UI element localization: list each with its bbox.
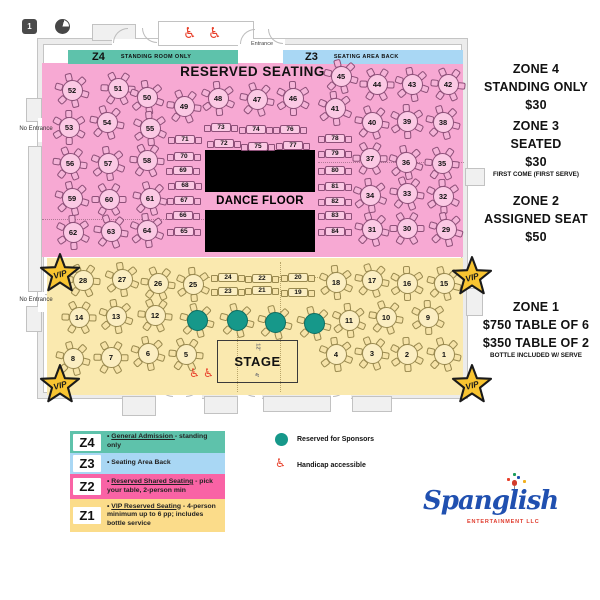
- table-14: 14: [61, 299, 97, 335]
- entrance-label: Entrance: [238, 41, 286, 47]
- band-z3-code: Z3: [305, 51, 318, 63]
- stage-label: STAGE: [234, 354, 280, 369]
- table-49: 49: [166, 88, 202, 124]
- table-17: 17: [354, 262, 390, 298]
- legend-code-z1: Z1: [73, 507, 101, 524]
- table-29: 29: [428, 211, 464, 247]
- wall-closet: [263, 396, 331, 412]
- company-logo: Spanglish ENTERTAINMENT LLC: [415, 478, 575, 538]
- table-number: 13: [106, 306, 127, 327]
- table-79: 79: [325, 149, 345, 158]
- pricing-zone4: ZONE 4STANDING ONLY$30: [472, 60, 600, 114]
- chair-icon: [156, 157, 164, 165]
- handicap-legend-label: Handicap accessible: [297, 462, 366, 469]
- legend-code-z3: Z3: [73, 455, 101, 472]
- table-57: 57: [90, 145, 126, 181]
- table-83: 83: [325, 211, 345, 220]
- table-number: 38: [433, 112, 454, 133]
- table-38: 38: [425, 104, 461, 140]
- band-z4-code: Z4: [92, 51, 105, 63]
- table-number: 52: [62, 80, 83, 101]
- table-number: 60: [99, 189, 120, 210]
- pricing-zone-title: ZONE 4: [472, 60, 600, 78]
- table-71: 71: [175, 135, 195, 144]
- table-31: 31: [354, 211, 390, 247]
- pricing-line: $350 TABLE OF 2: [472, 334, 600, 352]
- legend-detail: Seating Area Back: [111, 459, 170, 466]
- table-81: 81: [325, 182, 345, 191]
- pricing-line: $50: [472, 228, 600, 246]
- table-58: 58: [129, 142, 165, 178]
- vip-star: VIP: [39, 253, 81, 293]
- legend-description: General Admission - standing only: [107, 433, 222, 450]
- table-13: 13: [98, 298, 134, 334]
- dance-floor: DANCE FLOOR: [205, 150, 315, 252]
- table-26: 26: [140, 265, 176, 301]
- table-number: 37: [360, 148, 381, 169]
- chair-icon: [120, 354, 128, 361]
- handicap-icon: ♿: [203, 367, 214, 379]
- chair-icon: [290, 107, 297, 115]
- table-number: 50: [137, 87, 158, 108]
- table-56: 56: [52, 145, 88, 181]
- table-number: 44: [367, 74, 388, 95]
- table-number: 62: [63, 222, 84, 243]
- table-84: 84: [325, 227, 345, 236]
- table-73: 73: [211, 123, 231, 132]
- table-63: 63: [93, 213, 129, 249]
- pricing-zone-title: ZONE 1: [472, 298, 600, 316]
- table-21: 21: [252, 286, 272, 295]
- table-61: 61: [132, 180, 168, 216]
- dance-floor-label: DANCE FLOOR: [205, 192, 315, 210]
- table-number: 26: [148, 273, 169, 294]
- table-number: 51: [108, 78, 129, 99]
- table-47: 47: [239, 81, 275, 117]
- sponsor-table: [179, 302, 215, 338]
- table-number: 1: [434, 344, 455, 365]
- pricing-line: $30: [472, 153, 600, 171]
- stage-depth-label: 4': [253, 373, 259, 377]
- table-80: 80: [325, 166, 345, 175]
- legend-row-z1: Z1VIP Reserved Seating - 4-person minimu…: [70, 499, 225, 532]
- pricing-line: $30: [472, 96, 600, 114]
- table-number: 7: [101, 347, 122, 368]
- sponsor-dot-icon: [275, 433, 288, 446]
- chair-icon: [92, 277, 100, 285]
- table-39: 39: [389, 103, 425, 139]
- table-number: 27: [112, 269, 133, 290]
- pricing-line: STANDING ONLY: [472, 78, 600, 96]
- table-6: 6: [130, 335, 166, 371]
- sponsor-table: [296, 305, 332, 341]
- vip-star: VIP: [451, 364, 493, 404]
- table-42: 42: [430, 66, 466, 102]
- legend-row-z4: Z4General Admission - standing only: [70, 431, 225, 453]
- table-78: 78: [325, 134, 345, 143]
- table-32: 32: [425, 178, 461, 214]
- table-number: 63: [101, 221, 122, 242]
- band-zone3-seating-back: Z3 SEATING AREA BACK: [283, 50, 463, 64]
- legend-code-z4: Z4: [73, 434, 101, 451]
- table-64: 64: [129, 212, 165, 248]
- event-floorplan-flyer: 1 Z4 STANDING ROOM ONLY Z3 SEATING AREA …: [0, 0, 600, 600]
- chair-icon: [88, 314, 96, 321]
- chair-icon: [379, 155, 387, 162]
- handicap-icon: ♿: [208, 26, 221, 41]
- page-number-badge[interactable]: 1: [22, 19, 37, 34]
- table-69: 69: [173, 166, 193, 175]
- table-number: 54: [97, 112, 118, 133]
- table-number: 42: [438, 74, 459, 95]
- table-20: 20: [288, 273, 308, 282]
- chair-icon: [119, 196, 127, 203]
- chair-icon: [66, 136, 73, 144]
- table-68: 68: [175, 181, 195, 190]
- table-number: 16: [397, 273, 418, 294]
- pricing-line: ASSIGNED SEAT: [472, 210, 600, 228]
- table-12: 12: [137, 297, 173, 333]
- table-number: 31: [362, 219, 383, 240]
- logo-name: Spanglish: [423, 486, 558, 516]
- table-number: 2: [397, 344, 418, 365]
- table-16: 16: [389, 265, 425, 301]
- table-22: 22: [252, 274, 272, 283]
- table-44: 44: [359, 66, 395, 102]
- table-number: 57: [98, 153, 119, 174]
- handicap-icon: ♿: [275, 457, 286, 469]
- table-number: 47: [247, 89, 268, 110]
- table-number: 29: [436, 219, 457, 240]
- legend-term: General Admission: [111, 433, 175, 440]
- table-number: 11: [339, 310, 360, 331]
- table-75: 75: [248, 142, 268, 151]
- table-60: 60: [91, 181, 127, 217]
- pricing-note: FIRST COME (FIRST SERVE): [472, 171, 600, 179]
- legend-term: VIP Reserved Seating: [111, 503, 181, 510]
- table-number: 40: [362, 112, 383, 133]
- stage-width-label: 12': [255, 343, 261, 350]
- table-9: 9: [410, 299, 446, 335]
- table-number: 59: [62, 188, 83, 209]
- table-4: 4: [318, 336, 354, 372]
- table-number: 34: [360, 185, 381, 206]
- pricing-line: SEATED: [472, 135, 600, 153]
- confetti-icon: [513, 473, 516, 476]
- table-number: 53: [59, 117, 80, 138]
- table-27: 27: [104, 261, 140, 297]
- table-number: 33: [397, 183, 418, 204]
- table-number: 36: [396, 152, 417, 173]
- table-number: 48: [208, 88, 229, 109]
- table-number: 30: [397, 218, 418, 239]
- band-z4-label: STANDING ROOM ONLY: [121, 54, 191, 60]
- table-30: 30: [389, 210, 425, 246]
- confetti-icon: [507, 478, 510, 481]
- table-number: 9: [418, 307, 439, 328]
- table-35: 35: [424, 145, 460, 181]
- table-77: 77: [283, 141, 303, 150]
- pricing-zone-title: ZONE 3: [472, 117, 600, 135]
- sponsor-legend-label: Reserved for Sponsors: [297, 436, 374, 443]
- legend-row-z2: Z2Reserved Shared Seating - pick your ta…: [70, 474, 225, 499]
- table-33: 33: [389, 175, 425, 211]
- table-24: 24: [218, 273, 238, 282]
- table-19: 19: [288, 288, 308, 297]
- pricing-zone3: ZONE 3SEATED$30FIRST COME (FIRST SERVE): [472, 117, 600, 179]
- chair-icon: [404, 130, 411, 138]
- table-number: 56: [60, 153, 81, 174]
- pricing-zone2: ZONE 2ASSIGNED SEAT$50: [472, 192, 600, 246]
- table-70: 70: [174, 152, 194, 161]
- no-entrance-label: No Entrance: [12, 297, 60, 303]
- table-number: 4: [326, 344, 347, 365]
- wall-closet: [122, 396, 156, 416]
- table-number: 35: [432, 153, 453, 174]
- legend-description: Reserved Shared Seating - pick your tabl…: [107, 478, 222, 495]
- table-74: 74: [246, 125, 266, 134]
- table-48: 48: [200, 80, 236, 116]
- table-number: 3: [362, 343, 383, 364]
- legend-row-z3: Z3Seating Area Back: [70, 453, 225, 474]
- table-65: 65: [174, 227, 194, 236]
- table-46: 46: [275, 80, 311, 116]
- table-10: 10: [368, 299, 404, 335]
- table-number: 46: [283, 88, 304, 109]
- table-40: 40: [354, 104, 390, 140]
- table-number: 61: [140, 188, 161, 209]
- pricing-note: BOTTLE INCLUDED W/ SERVE: [472, 352, 600, 360]
- legend-code-z2: Z2: [73, 478, 101, 495]
- table-45: 45: [323, 58, 359, 94]
- table-number: 58: [137, 150, 158, 171]
- table-54: 54: [89, 104, 125, 140]
- table-number: 5: [176, 344, 197, 365]
- table-53: 53: [51, 109, 87, 145]
- sponsor-table-top: [304, 313, 325, 334]
- pricing-zone-title: ZONE 2: [472, 192, 600, 210]
- table-18: 18: [318, 264, 354, 300]
- sponsor-table-top: [265, 312, 286, 333]
- pricing-zone1: ZONE 1$750 TABLE OF 6$350 TABLE OF 2BOTT…: [472, 298, 600, 360]
- table-number: 18: [326, 272, 347, 293]
- vip-star: VIP: [39, 364, 81, 404]
- table-number: 43: [402, 74, 423, 95]
- table-11: 11: [331, 302, 367, 338]
- vip-star: VIP: [451, 256, 493, 296]
- table-number: 17: [362, 270, 383, 291]
- table-number: 41: [325, 98, 346, 119]
- table-55: 55: [132, 110, 168, 146]
- table-62: 62: [55, 214, 91, 250]
- wall-closet: [352, 396, 392, 412]
- handicap-icon: ♿: [183, 26, 196, 41]
- table-43: 43: [394, 66, 430, 102]
- table-number: 39: [397, 111, 418, 132]
- table-59: 59: [54, 180, 90, 216]
- confetti-icon: [517, 476, 520, 479]
- chair-icon: [404, 363, 412, 371]
- table-number: 6: [138, 343, 159, 364]
- pricing-line: $750 TABLE OF 6: [472, 316, 600, 334]
- logo-subtitle: ENTERTAINMENT LLC: [467, 519, 539, 525]
- table-66: 66: [173, 211, 193, 220]
- chair-icon: [417, 225, 425, 232]
- table-37: 37: [352, 140, 388, 176]
- table-7: 7: [93, 339, 129, 375]
- table-76: 76: [280, 125, 300, 134]
- table-52: 52: [54, 72, 90, 108]
- sponsor-table-top: [187, 310, 208, 331]
- contrast-icon[interactable]: [55, 19, 70, 34]
- table-number: 14: [69, 307, 90, 328]
- table-number: 49: [174, 96, 195, 117]
- sponsor-table-top: [227, 310, 248, 331]
- band-zone4-standing: Z4 STANDING ROOM ONLY: [68, 50, 238, 64]
- table-number: 12: [145, 305, 166, 326]
- table-number: 45: [331, 66, 352, 87]
- zone-legend: Z4General Admission - standing onlyZ3Sea…: [70, 431, 225, 532]
- table-number: 10: [376, 307, 397, 328]
- table-number: 25: [183, 274, 204, 295]
- table-34: 34: [352, 177, 388, 213]
- table-number: 64: [137, 220, 158, 241]
- table-23: 23: [218, 287, 238, 296]
- handicap-icon: ♿: [189, 367, 200, 379]
- confetti-icon: [523, 480, 526, 483]
- table-2: 2: [389, 336, 425, 372]
- table-72: 72: [214, 139, 234, 148]
- legend-description: Seating Area Back: [107, 459, 171, 468]
- chair-icon: [425, 326, 432, 334]
- table-41: 41: [317, 90, 353, 126]
- table-25: 25: [175, 266, 211, 302]
- table-number: 55: [140, 118, 161, 139]
- legend-description: VIP Reserved Seating - 4-person minimum …: [107, 503, 222, 529]
- legend-term: Reserved Shared Seating: [111, 478, 193, 485]
- table-82: 82: [325, 197, 345, 206]
- table-3: 3: [354, 335, 390, 371]
- wall-closet: [204, 396, 238, 414]
- sponsor-table: [257, 304, 293, 340]
- sponsor-table: [219, 302, 255, 338]
- table-67: 67: [174, 196, 194, 205]
- chair-icon: [70, 241, 78, 249]
- table-number: 32: [433, 186, 454, 207]
